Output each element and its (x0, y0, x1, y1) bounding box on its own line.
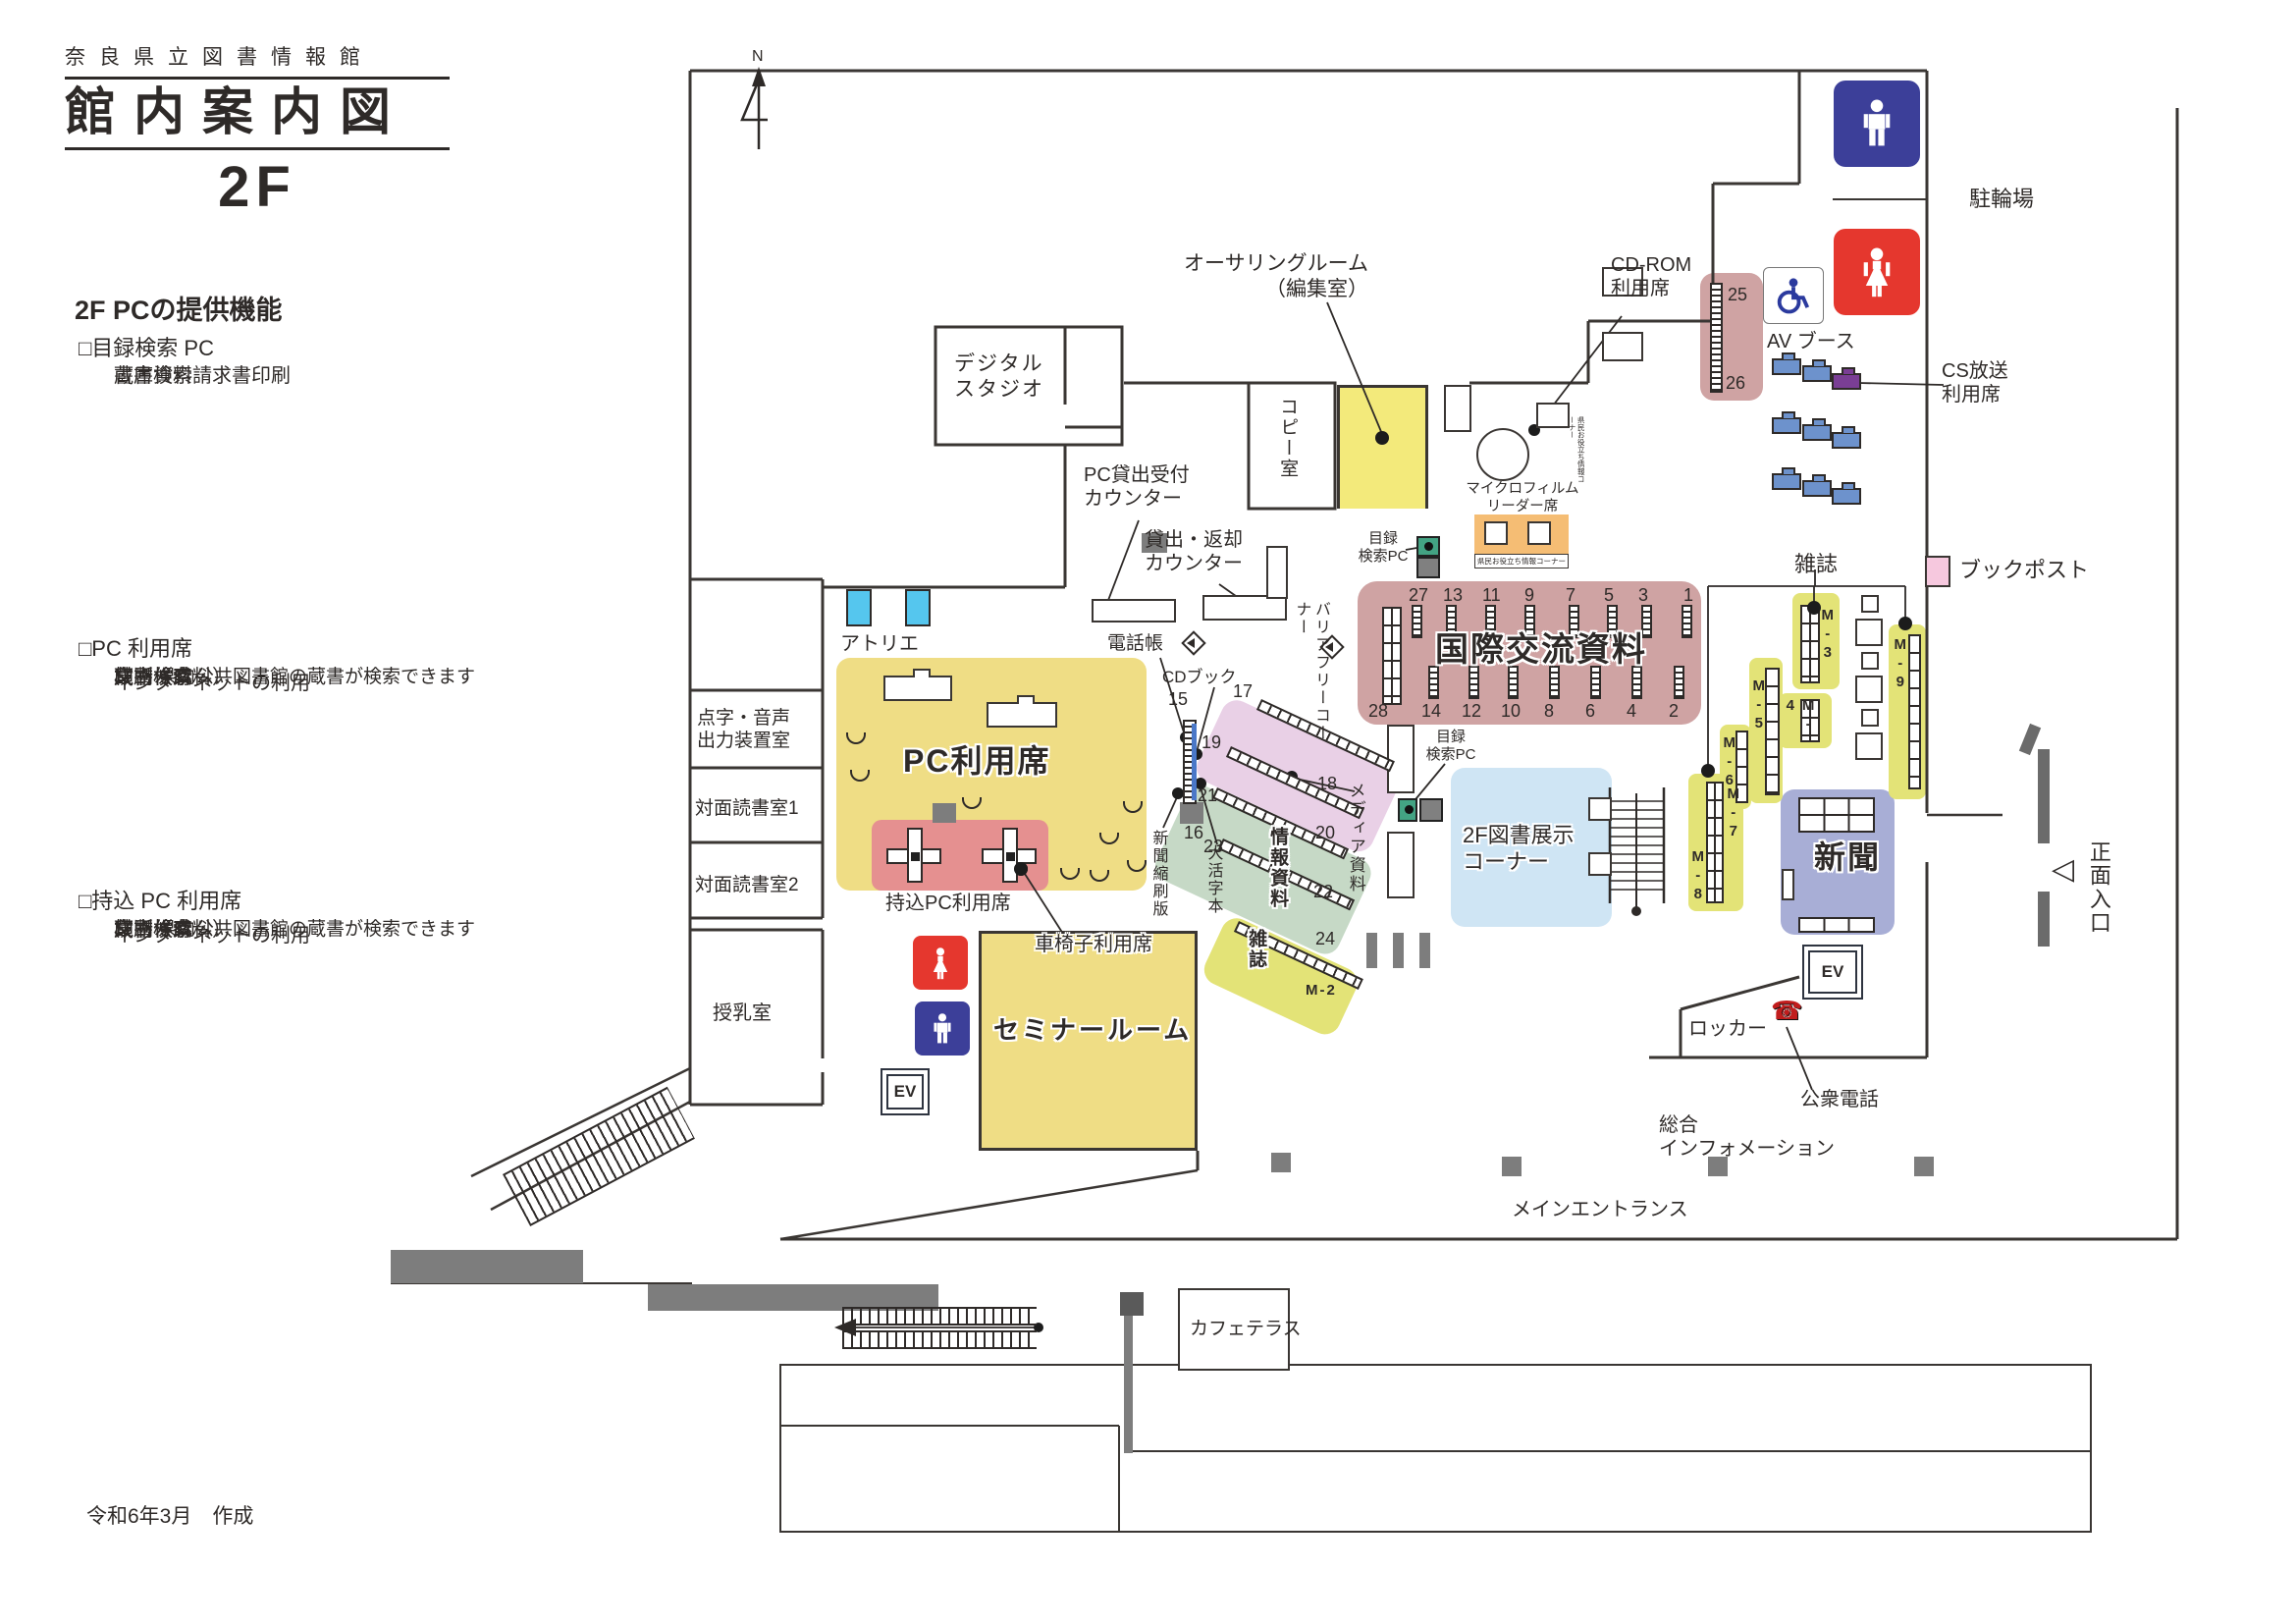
entrance-door (2038, 749, 2050, 843)
intl-shelf-number: 9 (1524, 585, 1534, 607)
bicycle-parking-label: 駐輪場 (1969, 187, 2034, 213)
elevator: EV (881, 1068, 930, 1115)
catalog-pc-terminal (1416, 536, 1440, 557)
round-table (1476, 428, 1529, 481)
pillar (1366, 933, 1377, 968)
floor-map-page: 奈良県立図書情報館 館内案内図 2F 2F PCの提供機能 □目録検索 PC 蔵… (0, 0, 2296, 1624)
media-materials-label: メディア資料 (1345, 782, 1365, 914)
phonebook-label: 電話帳 (1107, 632, 1163, 655)
international-label: 国際交流資料 (1394, 630, 1688, 671)
av-booth-seat (1772, 358, 1801, 375)
large-print-label: 大活字本 (1203, 844, 1223, 943)
shelf-number: 19 (1201, 732, 1221, 754)
newspaper-table (1798, 917, 1875, 933)
elevator: EV (1802, 945, 1863, 1000)
cafe-terrace-label: カフェテラス (1190, 1318, 1302, 1340)
pc-lending-counter-label: PC貸出受付 カウンター (1084, 463, 1190, 512)
shelf-number: 15 (1168, 689, 1188, 711)
cdrom-seats-label: CD-ROM 利用席 (1611, 253, 1691, 301)
intl-shelf-number: 6 (1585, 701, 1595, 723)
shelf-number: 24 (1315, 929, 1335, 950)
stair-side-box (1588, 797, 1612, 821)
shelf-m9-label: M-9 (1891, 636, 1908, 695)
shelf-number: 18 (1317, 774, 1337, 795)
cd-book-label: CDブック (1162, 668, 1237, 688)
atelier-label: アトリエ (840, 632, 919, 656)
authoring-room-label: オーサリングルーム （編集室） (1135, 251, 1368, 301)
book-post-label: ブックポスト (1959, 558, 2089, 584)
shelf-m8-label: M-8 (1688, 848, 1706, 907)
kenmin-info-label: 県民お役立ち情報コーナー (1476, 557, 1567, 566)
catalog-pc-label: 目録 検索PC (1355, 530, 1412, 567)
escalator (842, 1307, 1037, 1326)
av-booth-label: AV ブース (1767, 330, 1855, 353)
counter-lending-return (1266, 546, 1288, 599)
shelf-number: 21 (1198, 785, 1217, 807)
desk (1387, 832, 1415, 898)
copy-room-label: コピー室 (1276, 397, 1299, 505)
stair-side-box (1588, 852, 1612, 876)
shelf-m7-label: M-7 (1724, 785, 1741, 844)
main-entrance-label: メインエントランス (1512, 1198, 1688, 1221)
intl-shelf-number: 14 (1421, 701, 1441, 723)
reading-room1-label: 対面読書室1 (695, 797, 799, 820)
public-phone-label: 公衆電話 (1800, 1088, 1879, 1111)
bring-pc-seats-label: 持込PC利用席 (885, 892, 1011, 915)
intl-shelf-number: 2 (1669, 701, 1679, 723)
locker-label: ロッカー (1688, 1017, 1767, 1041)
braille-room-label: 点字・音声 出力装置室 (697, 707, 790, 752)
shelf-m4-label: M-4 (1781, 697, 1817, 746)
wall-bar (391, 1250, 583, 1283)
elevator-label: EV (1808, 950, 1857, 994)
shelf-m6-label: M-6 (1720, 734, 1737, 793)
womens-toilet-icon (1834, 229, 1920, 315)
info-materials-label: 情報資料 (1266, 827, 1289, 949)
wheelchair-seat-marker (1014, 862, 1028, 876)
shelf-number: 16 (1184, 823, 1203, 844)
barrier-free-label: バリアフリーコーナー (1292, 601, 1330, 758)
pillar (1502, 1157, 1522, 1176)
bookshelf (1710, 283, 1723, 393)
av-booth-seat (1832, 488, 1861, 505)
pillar (1271, 1153, 1291, 1172)
compass-north-label: N (752, 47, 764, 67)
stairs-icon (1610, 787, 1664, 916)
general-info-label: 総合 インフォメーション (1659, 1113, 1835, 1162)
byod-desk-cluster (886, 828, 943, 885)
byod-desk-cluster (982, 828, 1039, 885)
magazines-m2-label: 雑誌 (1245, 929, 1267, 998)
kenmin-info-label: 県民お役立ち情報コーナー (1568, 416, 1585, 489)
intl-shelf-number: 12 (1462, 701, 1481, 723)
reading-room2-label: 対面読書室2 (695, 874, 799, 896)
av-booth-seat (1802, 365, 1832, 382)
intl-shelf-number: 1 (1683, 585, 1693, 607)
wall-bar (1124, 1316, 1133, 1453)
shelf-number: 26 (1726, 373, 1745, 395)
intl-shelf-number: 11 (1482, 585, 1501, 607)
pc-desk (883, 676, 952, 701)
cdrom-desk (1444, 385, 1471, 432)
newspaper-table (1798, 797, 1875, 833)
av-booth-seat (1772, 473, 1801, 490)
direction-marker-icon (1181, 630, 1206, 656)
pillar (1914, 1157, 1934, 1176)
shelf-number: 17 (1233, 681, 1253, 703)
atelier-chair (905, 589, 931, 626)
escalator (842, 1330, 1037, 1349)
intl-shelf-number: 5 (1604, 585, 1614, 607)
intl-shelf-number: 3 (1638, 585, 1648, 607)
entrance-arrow-icon: ◁ (2052, 852, 2074, 889)
shelf-m3-label: M-3 (1818, 607, 1836, 681)
terminal (1416, 557, 1440, 578)
av-booth-seat (1802, 424, 1832, 441)
pc-seats-label: PC利用席 (903, 742, 1050, 781)
shelf-m2-label: M-2 (1306, 982, 1337, 1031)
desk (1602, 332, 1643, 361)
lending-return-counter-label: 貸出・返却 カウンター (1137, 528, 1243, 576)
microfilm-label: マイクロフィルム リーダー席 (1465, 481, 1580, 515)
av-booth-seat (1802, 480, 1832, 497)
intl-shelf-number: 28 (1368, 701, 1388, 723)
intl-shelf-number: 13 (1443, 585, 1463, 607)
catalog-pc-label: 目録 検索PC (1421, 729, 1480, 765)
bookshelf-cd-accent (1192, 724, 1197, 800)
wheelchair-seats-label: 車椅子利用席 (1035, 933, 1152, 956)
newspapers-label: 新聞 (1814, 839, 1881, 877)
intl-shelf-number: 4 (1627, 701, 1636, 723)
desk (1536, 403, 1570, 428)
room-digital-studio-label: デジタル スタジオ (954, 352, 1044, 402)
map-lines (0, 0, 2296, 1624)
av-booth-seat (1772, 417, 1801, 434)
av-booth-seat (1832, 432, 1861, 449)
terminal (1419, 798, 1443, 822)
shelf-m5-label: M-5 (1749, 677, 1767, 736)
pillar (1120, 1292, 1144, 1316)
nursing-room-label: 授乳室 (713, 1001, 772, 1025)
public-phone-icon: ☎ (1771, 996, 1802, 1027)
intl-shelf-number: 27 (1409, 585, 1428, 607)
pc-desk (987, 702, 1057, 728)
mens-toilet-icon (1834, 81, 1920, 167)
pillar (1419, 933, 1430, 968)
shelf-number: 25 (1728, 285, 1747, 306)
intl-shelf-number: 8 (1544, 701, 1554, 723)
catalog-pc-terminal (1398, 798, 1417, 822)
shelf-number: 23 (1203, 837, 1223, 858)
seminar-room-label: セミナールーム (993, 1015, 1192, 1047)
pillar (1393, 933, 1404, 968)
front-entrance-label: 正面入口 (2085, 840, 2111, 968)
intl-shelf-number: 7 (1566, 585, 1575, 607)
counter-pc-lending (1092, 599, 1176, 623)
entrance-door (2038, 892, 2050, 947)
shelf-number: 22 (1313, 882, 1333, 903)
pillar (933, 803, 956, 823)
compass-north-icon (742, 67, 768, 149)
shelf-box (1782, 869, 1794, 900)
womens-toilet-icon (913, 936, 968, 990)
cs-broadcast-label: CS放送 利用席 (1942, 359, 2008, 407)
atelier-chair (846, 589, 872, 626)
display-corner-label: 2F図書展示 コーナー (1463, 823, 1575, 876)
shelf-number: 20 (1315, 823, 1335, 844)
mens-toilet-icon (915, 1001, 970, 1056)
elevator-label: EV (886, 1074, 924, 1110)
magazines-label: 雑誌 (1794, 552, 1838, 578)
intl-shelf-number: 10 (1501, 701, 1521, 723)
newspaper-reduced-label: 新聞縮刷版 (1148, 830, 1168, 947)
accessible-toilet-icon (1763, 267, 1824, 324)
cs-broadcast-seat (1832, 373, 1861, 390)
